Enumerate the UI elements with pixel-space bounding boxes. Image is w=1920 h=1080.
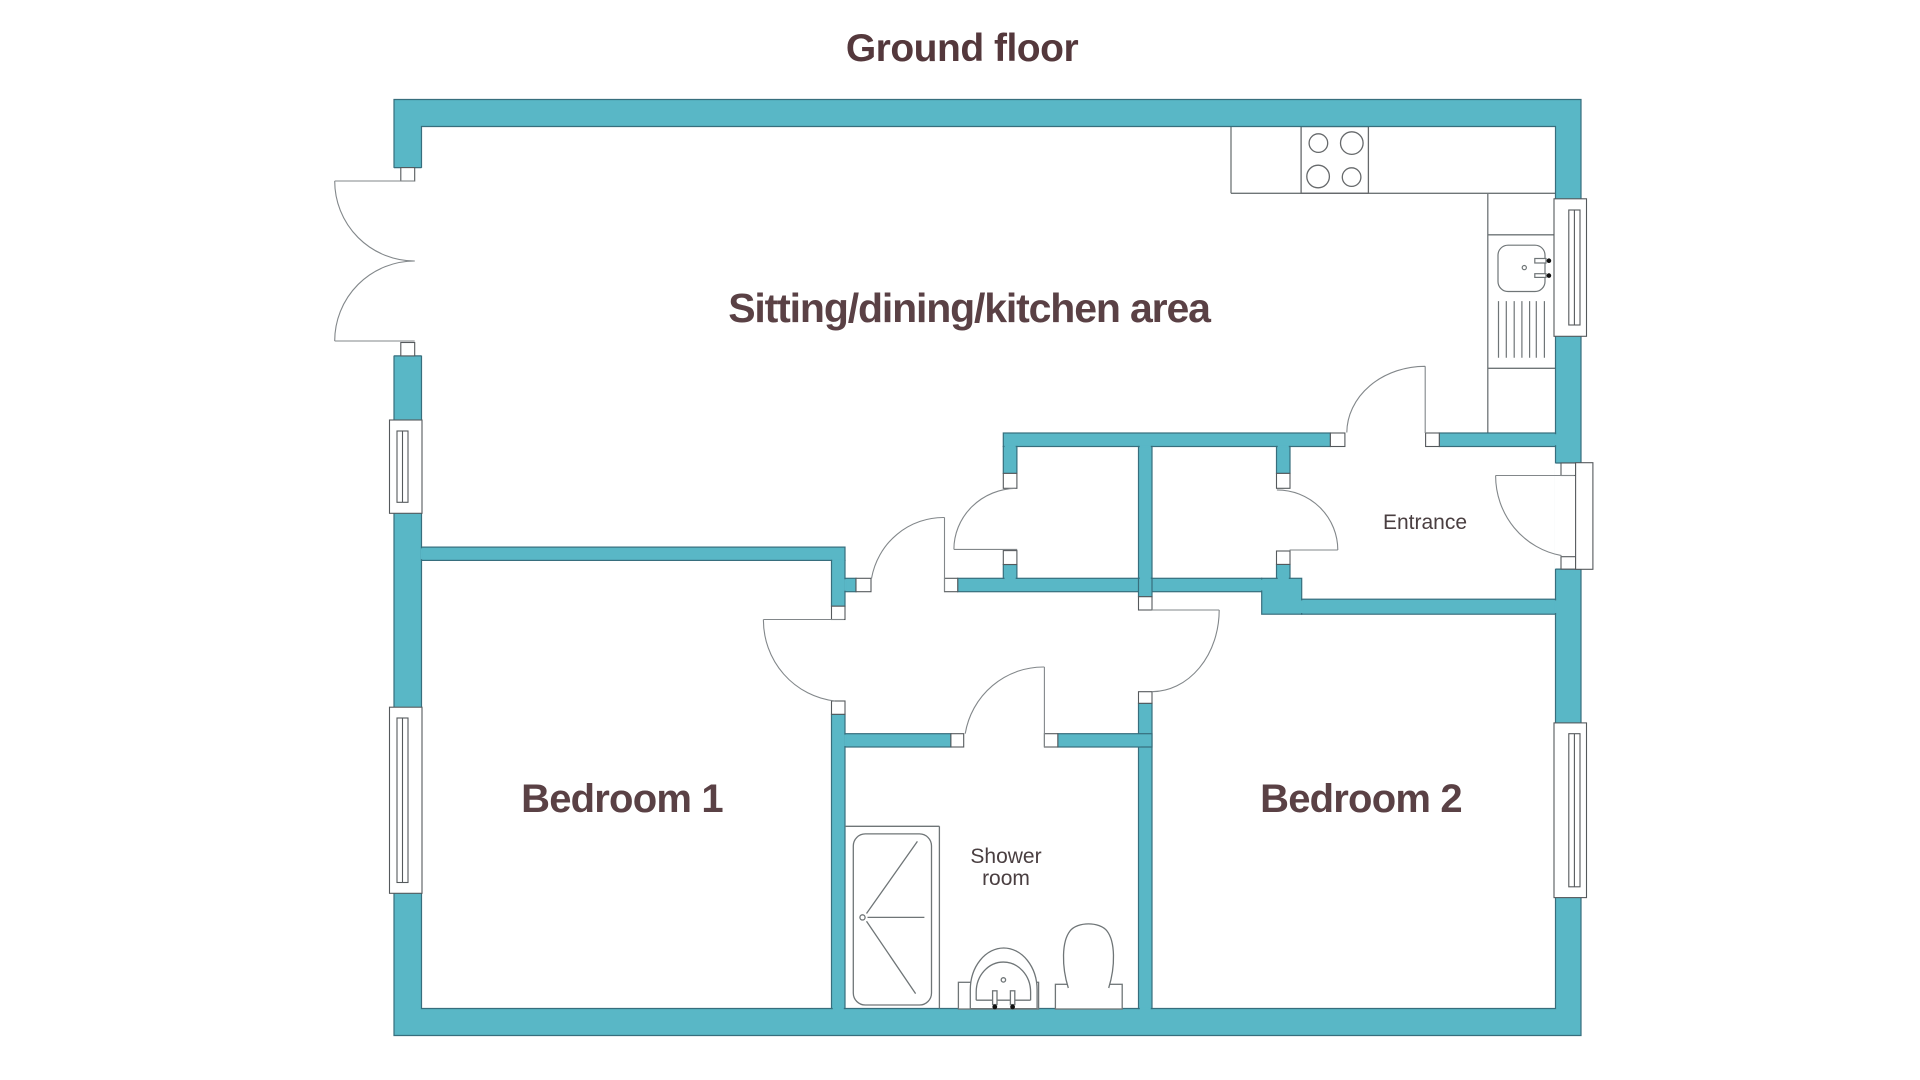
svg-text:Bedroom 1: Bedroom 1	[521, 777, 723, 821]
svg-text:Sitting/dining/kitchen area: Sitting/dining/kitchen area	[728, 285, 1212, 331]
svg-text:Entrance: Entrance	[1383, 511, 1467, 534]
svg-text:Ground floor: Ground floor	[846, 27, 1079, 70]
svg-text:Shower: Shower	[970, 845, 1041, 868]
svg-text:Bedroom 2: Bedroom 2	[1260, 777, 1462, 821]
svg-text:room: room	[982, 867, 1030, 890]
